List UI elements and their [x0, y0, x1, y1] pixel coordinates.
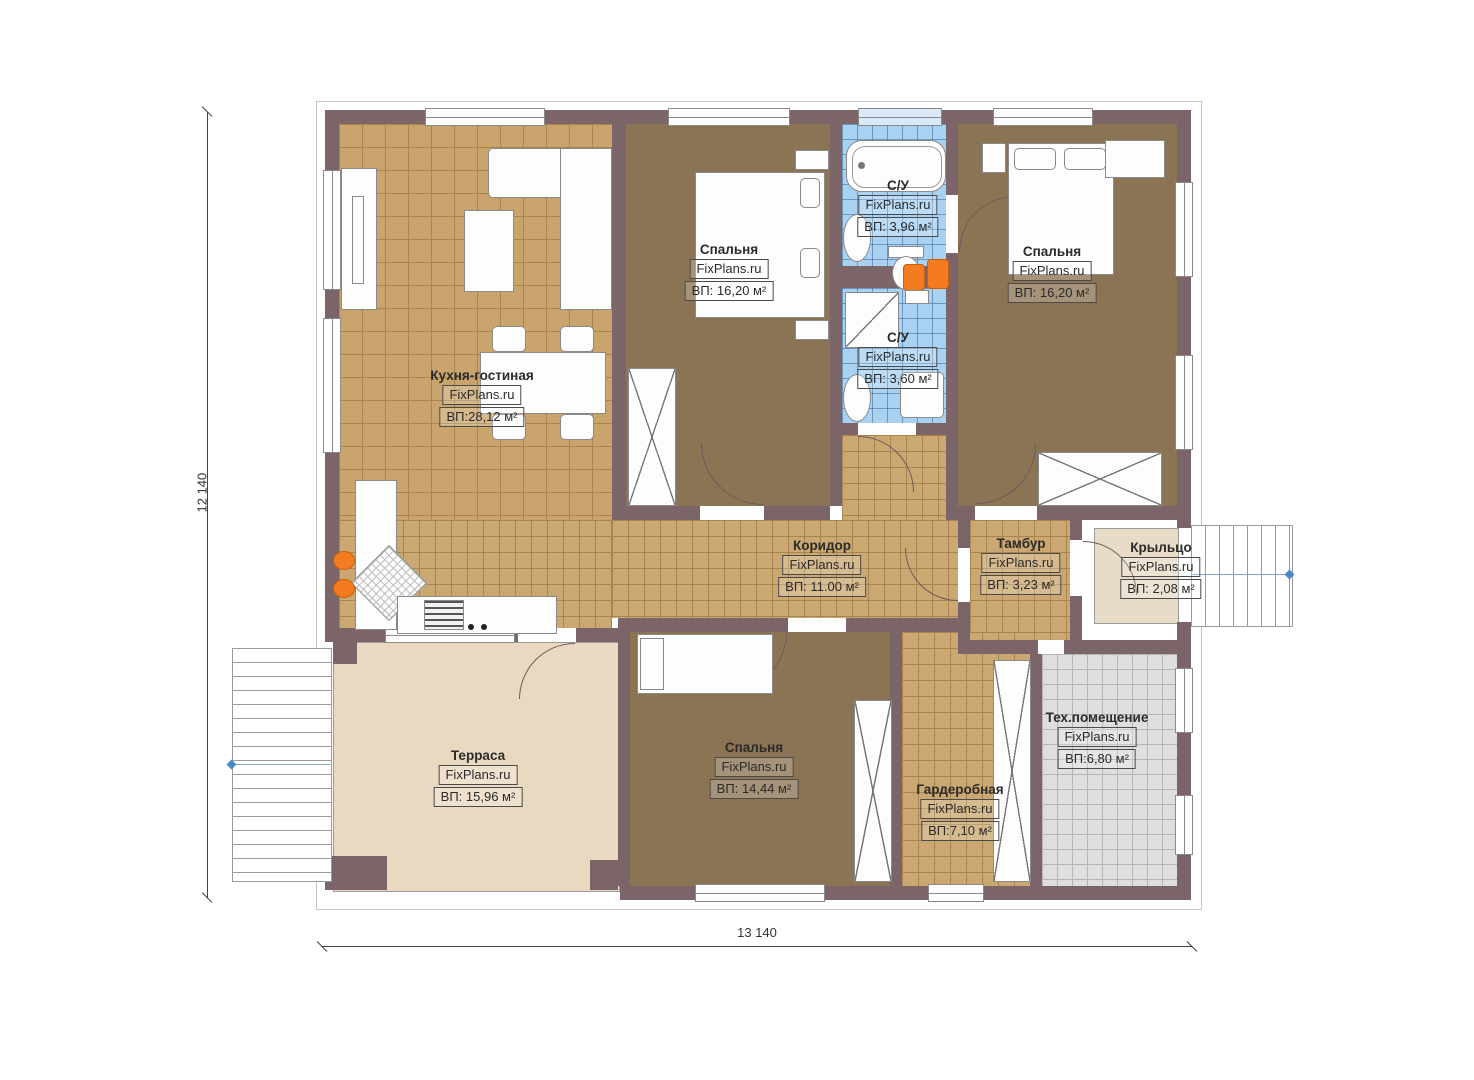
wall-bath-west — [830, 124, 842, 506]
pillow — [1014, 148, 1056, 170]
wall-right-upper — [1177, 110, 1191, 528]
watermark: FixPlans.ru — [1057, 727, 1136, 747]
terrace-steps — [232, 648, 332, 882]
door-opening — [1038, 640, 1064, 654]
steps-axis — [232, 764, 330, 765]
watermark: FixPlans.ru — [1121, 557, 1200, 577]
room-name: С/У — [857, 178, 938, 193]
steps-axis — [1191, 574, 1291, 575]
wall-vestibule-south — [958, 640, 1191, 654]
window — [323, 170, 341, 290]
door-opening — [946, 195, 958, 253]
label-tech-room: Тех.помещение FixPlans.ru ВП:6,80 м² — [1046, 710, 1149, 769]
tv — [352, 196, 364, 284]
watermark: FixPlans.ru — [858, 347, 937, 367]
room-area: ВП: 3,23 м² — [980, 575, 1061, 595]
room-name: Терраса — [434, 748, 523, 763]
window — [323, 318, 341, 453]
label-bathroom-bottom: С/У FixPlans.ru ВП: 3,60 м² — [857, 330, 938, 389]
shower-sink — [905, 290, 929, 304]
boiler-icon — [903, 264, 925, 291]
burner-knob — [481, 624, 487, 630]
label-bathroom-top: С/У FixPlans.ru ВП: 3,96 м² — [857, 178, 938, 237]
watermark: FixPlans.ru — [689, 259, 768, 279]
door-opening — [958, 548, 970, 602]
room-name: Крыльцо — [1120, 540, 1201, 555]
closet-niche — [1105, 140, 1165, 178]
room-area: ВП: 16,20 м² — [1008, 283, 1097, 303]
door-opening — [858, 423, 916, 435]
pillow — [1064, 148, 1106, 170]
dimension-line-horizontal — [322, 946, 1192, 947]
chair — [560, 326, 594, 352]
room-area: ВП:6,80 м² — [1058, 749, 1136, 769]
label-kitchen-living: Кухня-гостиная FixPlans.ru ВП:28,12 м² — [430, 368, 533, 427]
watermark: FixPlans.ru — [438, 765, 517, 785]
nightstand — [795, 150, 829, 170]
bathtub-drain — [858, 162, 865, 169]
label-corridor: Коридор FixPlans.ru ВП: 11.00 м² — [778, 538, 866, 597]
wardrobe-unit — [854, 700, 892, 882]
window — [1175, 355, 1193, 450]
room-area: ВП:28,12 м² — [439, 407, 524, 427]
terrace-column — [333, 642, 357, 664]
room-name: Спальня — [685, 242, 774, 257]
watermark: FixPlans.ru — [920, 799, 999, 819]
room-area: ВП: 2,08 м² — [1120, 579, 1201, 599]
coffee-table — [464, 210, 514, 292]
room-tech-floor — [1042, 654, 1177, 886]
label-bedroom-top: Спальня FixPlans.ru ВП: 16,20 м² — [685, 242, 774, 301]
room-name: Коридор — [778, 538, 866, 553]
pillow — [800, 248, 820, 278]
nightstand — [982, 143, 1006, 173]
room-area: ВП:7,10 м² — [921, 821, 999, 841]
window — [695, 884, 825, 902]
window — [425, 108, 545, 126]
stove — [424, 600, 464, 630]
floor-plan-page: Кухня-гостиная FixPlans.ru ВП:28,12 м² С… — [0, 0, 1474, 1080]
watermark: FixPlans.ru — [442, 385, 521, 405]
wall-kitchen-bedroom — [612, 124, 626, 520]
burner-knob — [468, 624, 474, 630]
room-name: Тех.помещение — [1046, 710, 1149, 725]
wall-bedroom-bottom-west — [618, 632, 630, 886]
watermark: FixPlans.ru — [714, 757, 793, 777]
label-porch: Крыльцо FixPlans.ru ВП: 2,08 м² — [1120, 540, 1201, 599]
wardrobe-unit — [1038, 452, 1162, 506]
window — [1175, 668, 1193, 733]
radiator-icon — [333, 579, 355, 598]
room-area: ВП: 3,96 м² — [857, 217, 938, 237]
wardrobe-unit — [628, 368, 676, 506]
room-area: ВП: 15,96 м² — [434, 787, 523, 807]
label-bedroom-right: Спальня FixPlans.ru ВП: 16,20 м² — [1008, 244, 1097, 303]
label-vestibule: Тамбур FixPlans.ru ВП: 3,23 м² — [980, 536, 1061, 595]
pillow — [640, 638, 664, 690]
entry-door-opening — [1070, 540, 1082, 596]
chair — [492, 326, 526, 352]
terrace-column — [590, 860, 618, 890]
room-area: ВП: 3,60 м² — [857, 369, 938, 389]
wall-bath-east — [946, 124, 958, 506]
pillow — [800, 178, 820, 208]
sofa-back — [560, 148, 612, 310]
boiler-icon — [927, 259, 949, 289]
label-wardrobe: Гардеробная FixPlans.ru ВП:7,10 м² — [916, 782, 1003, 841]
label-bedroom-bottom: Спальня FixPlans.ru ВП: 14,44 м² — [710, 740, 799, 799]
window — [858, 108, 942, 126]
dimension-height-label: 12 140 — [194, 473, 209, 513]
door-opening — [700, 506, 764, 520]
watermark: FixPlans.ru — [782, 555, 861, 575]
wardrobe-unit — [993, 660, 1031, 882]
terrace-column — [325, 856, 387, 890]
window — [928, 884, 984, 902]
label-terrace: Терраса FixPlans.ru ВП: 15,96 м² — [434, 748, 523, 807]
radiator-icon — [333, 551, 355, 570]
door-opening — [788, 618, 846, 632]
wall-right-lower — [1177, 622, 1191, 900]
watermark: FixPlans.ru — [858, 195, 937, 215]
room-name: Спальня — [710, 740, 799, 755]
room-name: Гардеробная — [916, 782, 1003, 797]
chair — [560, 414, 594, 440]
nightstand — [795, 320, 829, 340]
window — [993, 108, 1093, 126]
room-name: Кухня-гостиная — [430, 368, 533, 383]
room-area: ВП: 16,20 м² — [685, 281, 774, 301]
wall-wardrobe-tech — [1030, 654, 1042, 886]
watermark: FixPlans.ru — [1012, 261, 1091, 281]
window — [1175, 795, 1193, 855]
dimension-width-label: 13 140 — [737, 925, 777, 940]
room-area: ВП: 14,44 м² — [710, 779, 799, 799]
room-name: Тамбур — [980, 536, 1061, 551]
kitchen-counter-bottom — [397, 596, 557, 634]
room-name: Спальня — [1008, 244, 1097, 259]
room-area: ВП: 11.00 м² — [778, 577, 866, 597]
watermark: FixPlans.ru — [981, 553, 1060, 573]
door-opening — [975, 506, 1037, 520]
window — [668, 108, 790, 126]
room-name: С/У — [857, 330, 938, 345]
porch-steps — [1191, 525, 1293, 627]
window — [1175, 182, 1193, 277]
